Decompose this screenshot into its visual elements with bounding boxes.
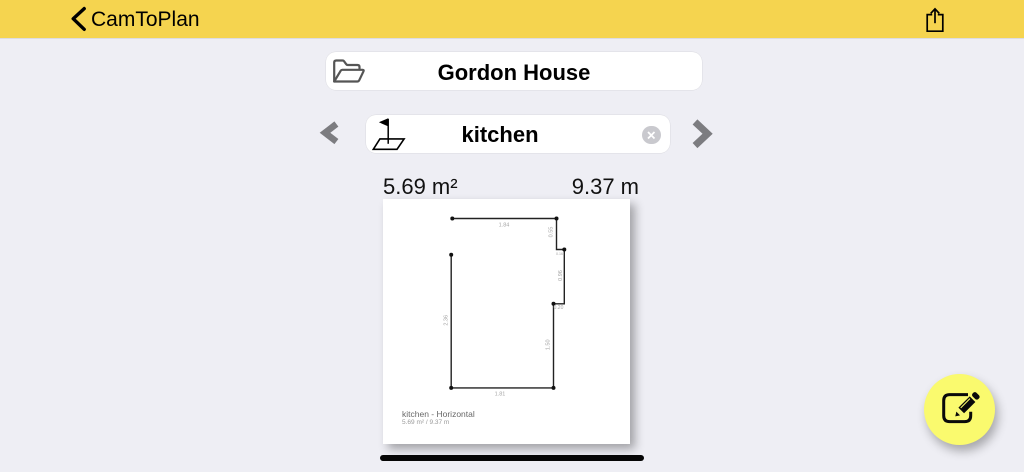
svg-text:0.16: 0.16 bbox=[556, 252, 563, 256]
svg-text:0.20: 0.20 bbox=[554, 305, 564, 311]
svg-text:1.50: 1.50 bbox=[546, 339, 552, 350]
svg-text:0.55: 0.55 bbox=[549, 227, 555, 238]
svg-text:1.84: 1.84 bbox=[499, 223, 510, 229]
svg-text:0.96: 0.96 bbox=[558, 270, 564, 281]
svg-text:1.81: 1.81 bbox=[495, 392, 506, 398]
svg-text:2.36: 2.36 bbox=[444, 315, 450, 326]
